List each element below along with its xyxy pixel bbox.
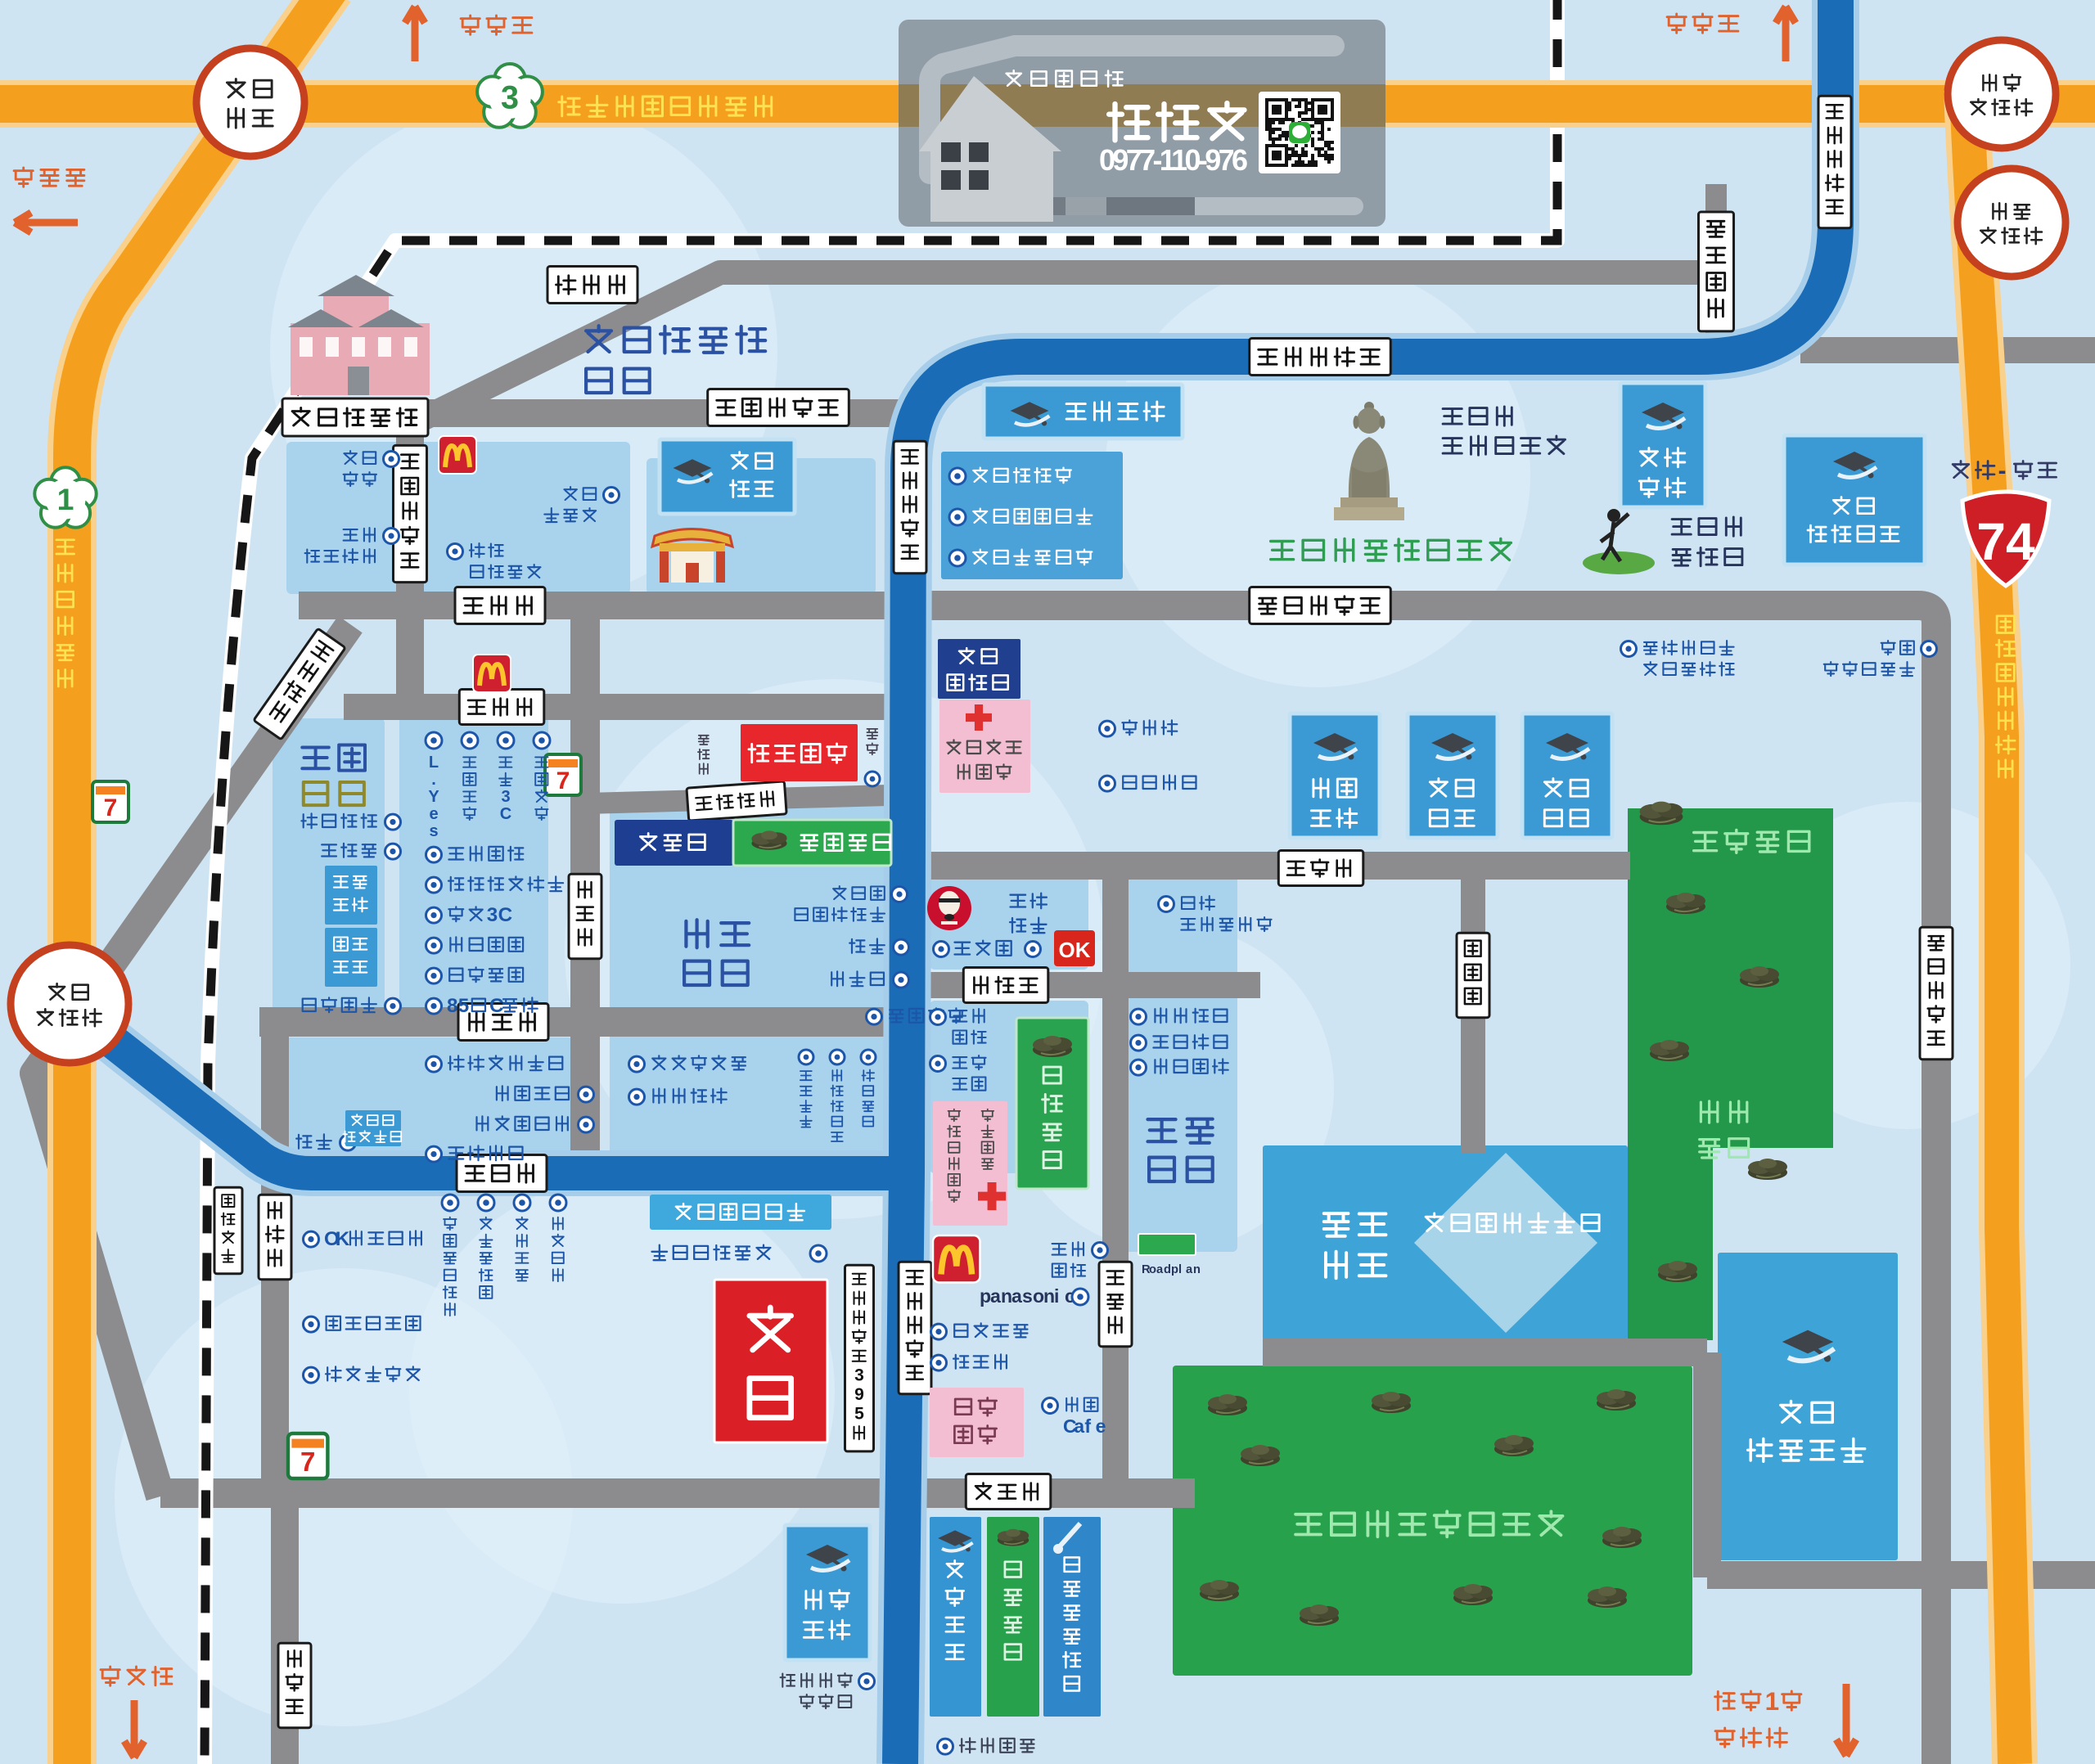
svg-text:3: 3: [487, 904, 498, 926]
svg-text:5: 5: [854, 1405, 864, 1424]
svg-text:9: 9: [854, 1385, 864, 1404]
svg-text:e: e: [429, 805, 438, 823]
svg-text:L: L: [429, 754, 439, 772]
svg-text:7: 7: [300, 1447, 315, 1477]
svg-text:0977-110-976: 0977-110-976: [1099, 143, 1248, 177]
svg-text:e: e: [1096, 1415, 1106, 1437]
svg-text:o: o: [1149, 1263, 1156, 1276]
svg-text:K: K: [336, 1228, 350, 1250]
svg-text:a: a: [1074, 1415, 1084, 1437]
svg-text:5: 5: [458, 995, 469, 1017]
svg-text:C: C: [489, 995, 503, 1017]
svg-text:OK: OK: [1059, 938, 1091, 962]
svg-text:f: f: [1084, 1415, 1091, 1437]
svg-text:o: o: [1033, 1285, 1044, 1307]
svg-text:1: 1: [57, 482, 74, 516]
svg-text:a: a: [1186, 1263, 1193, 1276]
svg-text:n: n: [1043, 1285, 1055, 1307]
svg-text:74: 74: [1976, 512, 2035, 571]
svg-text:p: p: [980, 1285, 991, 1307]
svg-text:3: 3: [501, 788, 510, 806]
svg-text:.: .: [431, 771, 436, 789]
svg-text:n: n: [1001, 1285, 1012, 1307]
svg-text:8: 8: [447, 995, 457, 1017]
svg-text:n: n: [1193, 1263, 1201, 1276]
svg-text:i: i: [1054, 1285, 1059, 1307]
svg-text:s: s: [1022, 1285, 1033, 1307]
svg-text:s: s: [429, 822, 438, 840]
svg-text:3: 3: [854, 1366, 864, 1385]
svg-text:d: d: [1164, 1263, 1171, 1276]
svg-text:7: 7: [104, 794, 118, 821]
svg-text:-: -: [1998, 457, 2007, 484]
svg-text:a: a: [1156, 1263, 1164, 1276]
svg-text:1: 1: [1765, 1686, 1780, 1716]
svg-text:3: 3: [501, 80, 519, 116]
svg-text:C: C: [500, 805, 511, 823]
svg-text:7: 7: [556, 767, 570, 794]
svg-text:C: C: [498, 904, 512, 926]
svg-text:a: a: [1011, 1285, 1022, 1307]
svg-text:Y: Y: [428, 788, 439, 806]
svg-text:a: a: [990, 1285, 1001, 1307]
svg-text:p: p: [1171, 1263, 1178, 1276]
svg-text:l: l: [1178, 1263, 1182, 1276]
